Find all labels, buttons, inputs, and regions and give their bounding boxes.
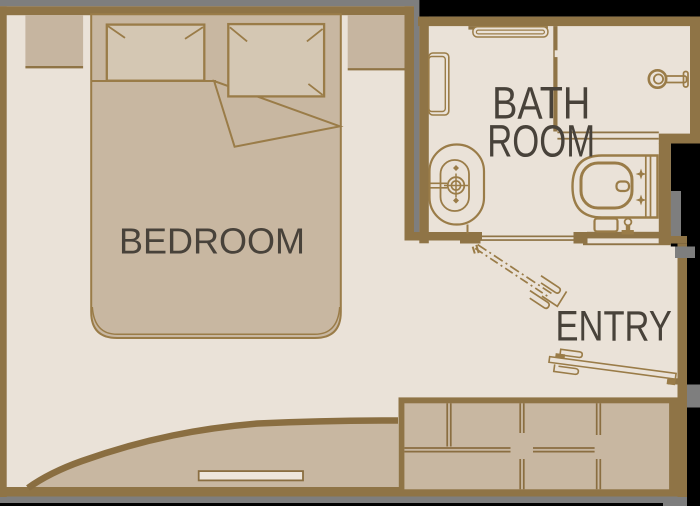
svg-text:ROOM: ROOM — [487, 116, 595, 166]
svg-text:BEDROOM: BEDROOM — [119, 221, 305, 262]
svg-text:ENTRY: ENTRY — [556, 303, 672, 350]
